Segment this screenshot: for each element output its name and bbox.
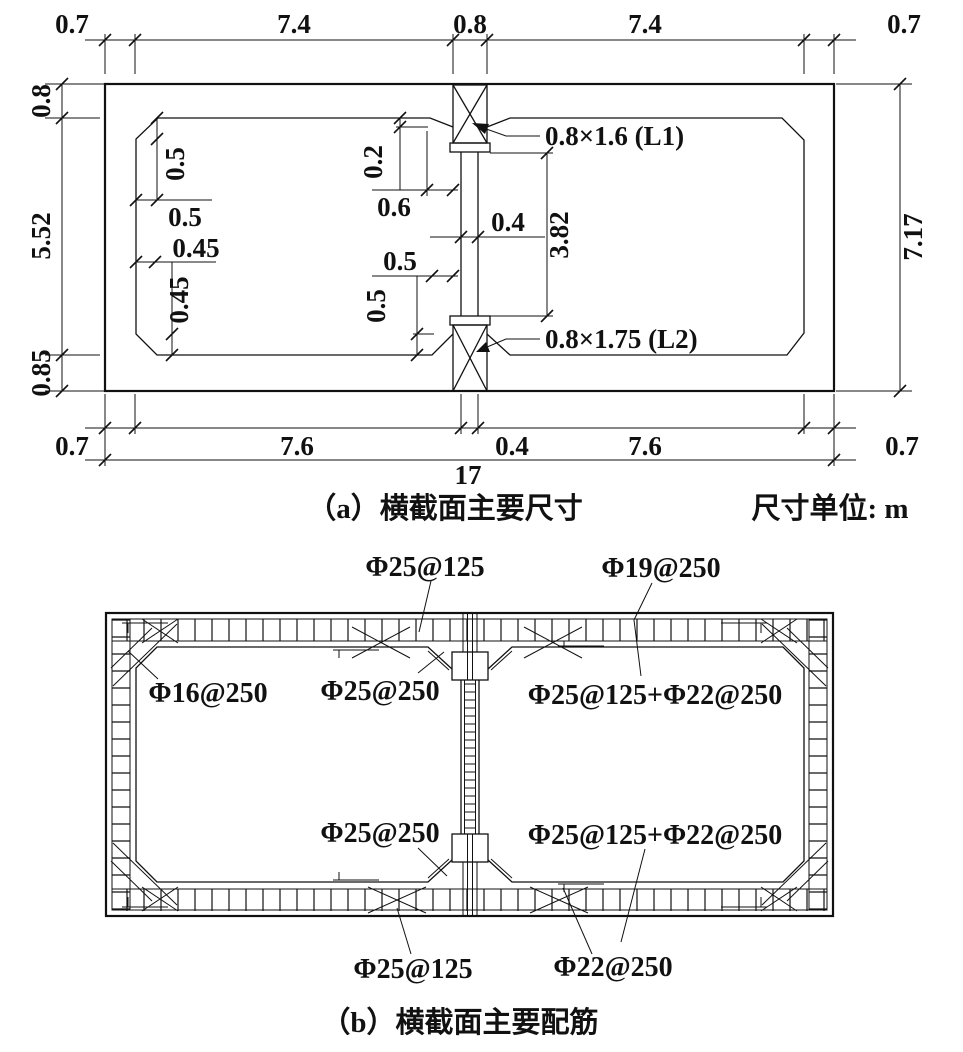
dim-chamfer-bl-v: 0.45 [164, 276, 194, 323]
dim-haunch-bot-depth: 0.5 [361, 289, 391, 323]
dim-wall-clear-height: 3.82 [544, 211, 574, 258]
dim-top-0: 0.7 [55, 9, 89, 39]
rebar-label-top-haunch: Φ25@250 [320, 676, 439, 707]
bottom-dimension-rows: 0.7 7.6 0.4 7.6 0.7 17 [55, 394, 919, 490]
panel-b-caption: （b）横截面主要配筋 [321, 1005, 598, 1039]
dim-bottom-haunch: 0.5 0.5 [361, 246, 459, 361]
dim-top-3: 7.4 [628, 9, 662, 39]
dim-bottom-0: 0.7 [55, 431, 89, 461]
beam-l1-symbol [450, 85, 490, 152]
rebar-label-bottom-slab-distribution: Φ22@250 [553, 952, 672, 983]
beam-l2-callout: 0.8×1.75 (L2) [476, 324, 698, 354]
right-wall-rebar-ticks [809, 619, 827, 910]
dim-top-2: 0.8 [453, 9, 487, 39]
dim-left-0: 0.8 [26, 84, 56, 118]
rebar-label-side-wall: Φ16@250 [148, 678, 267, 709]
panel-a-caption: （a）横截面主要尺寸 [307, 492, 583, 525]
panel-a-dimension-drawing: 0.7 7.4 0.8 7.4 0.7 0.8 5.52 0.85 7.17 [26, 9, 928, 525]
rebar-label-top-slab-top: Φ25@125 [365, 552, 484, 583]
dim-haunch-top-depth: 0.2 [358, 145, 388, 179]
dim-top-left-chamfer: 0.5 0.5 [130, 112, 212, 232]
rebar-label-right-cell-bottom: Φ25@125+Φ22@250 [528, 820, 782, 851]
dim-total-width: 17 [455, 460, 482, 490]
rebar-label-right-cell-top: Φ25@125+Φ22@250 [528, 680, 782, 711]
top-slab-rebar-ticks [112, 619, 827, 641]
dim-left-1: 5.52 [26, 212, 56, 259]
beam-l2-symbol [450, 316, 490, 391]
unit-note: 尺寸单位: m [751, 491, 908, 525]
rebar-label-bottom-haunch: Φ25@250 [320, 818, 439, 849]
center-wall-reinforcement [452, 614, 488, 915]
dim-bottom-4: 0.7 [885, 431, 919, 461]
dim-chamfer-tl-h: 0.5 [168, 202, 202, 232]
dim-bottom-2: 0.4 [495, 431, 529, 461]
dim-chamfer-bl-h: 0.45 [172, 233, 219, 263]
panel-b-reinforcement-drawing: Φ25@125 Φ19@250 Φ16@250 Φ25@250 Φ25@125+… [106, 552, 833, 1039]
beam-l1-label: 0.8×1.6 (L1) [545, 121, 684, 151]
dim-chamfer-tl-v: 0.5 [160, 147, 190, 181]
dim-bottom-3: 7.6 [628, 431, 662, 461]
dim-top-1: 7.4 [277, 9, 311, 39]
left-dimension-column: 0.8 5.52 0.85 [26, 78, 104, 397]
dim-top-4: 0.7 [887, 9, 921, 39]
left-wall-rebar-ticks [112, 619, 130, 910]
dim-top-haunch: 0.2 0.6 [358, 112, 459, 222]
dim-bottom-1: 7.6 [280, 431, 314, 461]
dim-right-total: 7.17 [898, 213, 928, 260]
dim-haunch-top-width: 0.6 [377, 192, 411, 222]
rebar-label-bottom-slab-bottom: Φ25@125 [353, 954, 472, 985]
rebar-label-top-slab-distribution: Φ19@250 [601, 553, 720, 584]
drawing-page: 0.7 7.4 0.8 7.4 0.7 0.8 5.52 0.85 7.17 [0, 0, 963, 1052]
dim-wall-thickness: 0.4 [491, 207, 525, 237]
dim-mid-wall: 0.4 3.82 [430, 147, 574, 322]
cross-section-drawing: 0.7 7.4 0.8 7.4 0.7 0.8 5.52 0.85 7.17 [0, 0, 963, 1052]
beam-l1-callout: 0.8×1.6 (L1) [472, 121, 684, 151]
dim-haunch-bot-width: 0.5 [383, 246, 417, 276]
right-dimension-column: 7.17 [836, 78, 928, 397]
dim-left-2: 0.85 [26, 349, 56, 396]
top-dimension-row: 0.7 7.4 0.8 7.4 0.7 [55, 9, 921, 74]
bottom-slab-rebar-ticks [112, 889, 827, 911]
center-wall-top-block [452, 652, 488, 680]
center-wall-bottom-block [452, 834, 488, 862]
beam-l2-label: 0.8×1.75 (L2) [545, 324, 698, 354]
